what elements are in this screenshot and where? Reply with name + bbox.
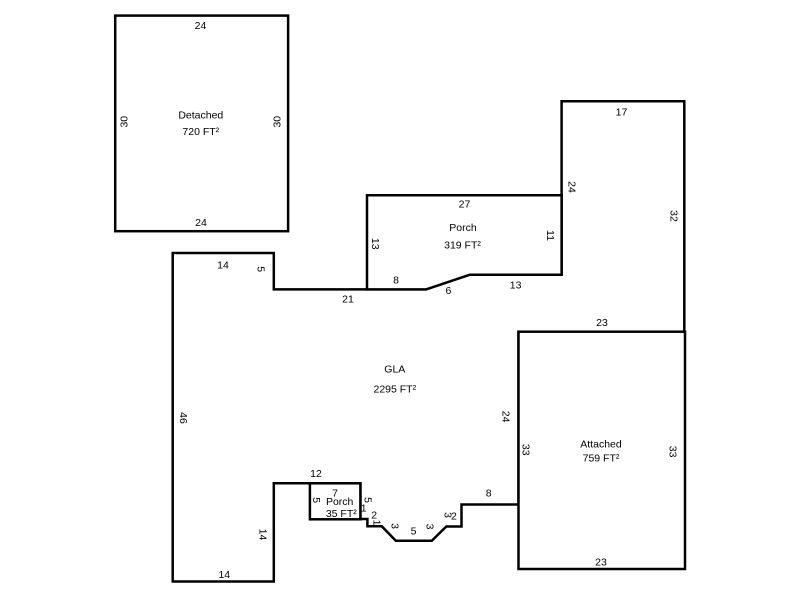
svg-text:46: 46 [177, 412, 189, 424]
svg-text:319 FT²: 319 FT² [444, 239, 481, 251]
svg-text:1: 1 [361, 503, 367, 515]
svg-text:Porch: Porch [449, 222, 477, 234]
svg-text:8: 8 [393, 275, 399, 287]
svg-text:33: 33 [666, 446, 678, 458]
svg-text:5: 5 [310, 497, 322, 503]
svg-text:5: 5 [362, 497, 374, 503]
svg-text:8: 8 [486, 488, 492, 500]
svg-text:21: 21 [342, 294, 354, 306]
svg-text:24: 24 [499, 411, 511, 423]
svg-text:14: 14 [218, 569, 230, 581]
svg-text:12: 12 [310, 468, 322, 480]
svg-text:1: 1 [370, 520, 382, 526]
svg-text:720 FT²: 720 FT² [182, 126, 219, 138]
svg-text:24: 24 [566, 181, 578, 193]
svg-text:33: 33 [519, 444, 531, 456]
svg-text:17: 17 [616, 107, 628, 119]
svg-text:2295 FT²: 2295 FT² [373, 384, 416, 396]
svg-text:13: 13 [510, 279, 522, 291]
svg-text:Attached: Attached [580, 439, 622, 451]
svg-text:27: 27 [459, 199, 471, 211]
svg-text:14: 14 [217, 259, 229, 271]
svg-text:32: 32 [668, 210, 680, 222]
svg-text:2: 2 [451, 511, 457, 523]
svg-text:5: 5 [254, 266, 266, 272]
svg-text:24: 24 [195, 217, 207, 229]
svg-text:30: 30 [272, 116, 284, 128]
svg-text:35 FT²: 35 FT² [326, 508, 357, 520]
svg-text:3: 3 [389, 523, 401, 529]
svg-text:Detached: Detached [178, 110, 223, 122]
svg-text:13: 13 [369, 238, 381, 250]
svg-text:759 FT²: 759 FT² [583, 453, 620, 465]
svg-text:6: 6 [445, 285, 451, 297]
svg-text:5: 5 [411, 526, 417, 538]
svg-text:30: 30 [119, 116, 131, 128]
svg-text:3: 3 [423, 524, 435, 530]
svg-text:GLA: GLA [384, 364, 405, 376]
svg-text:14: 14 [257, 529, 269, 541]
svg-text:Porch: Porch [326, 496, 354, 508]
svg-text:23: 23 [596, 317, 608, 329]
svg-text:11: 11 [544, 230, 556, 241]
svg-text:24: 24 [195, 20, 207, 32]
svg-text:23: 23 [595, 556, 607, 568]
